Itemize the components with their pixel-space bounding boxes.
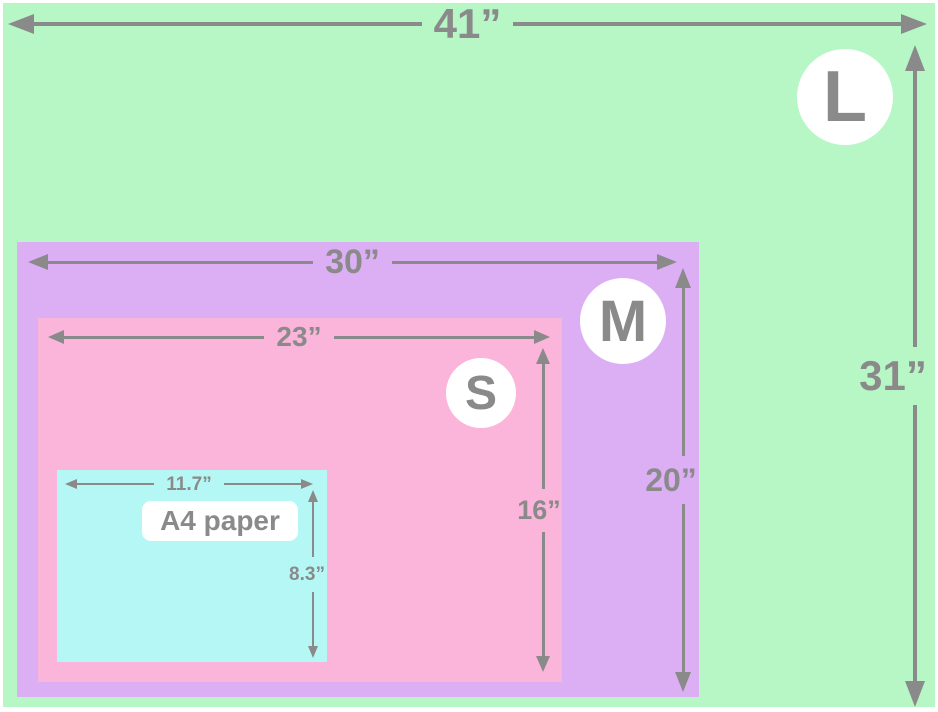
arrow-down-icon <box>905 681 925 707</box>
dimension-line <box>682 504 685 672</box>
dimension-line <box>682 288 685 456</box>
size-m-width-dimension: 30” <box>28 241 677 283</box>
dimension-line <box>913 71 917 347</box>
dimension-line <box>77 483 154 485</box>
size-s-badge: S <box>446 358 516 428</box>
size-l-width-dimension: 41” <box>8 2 927 46</box>
dimension-line <box>312 502 314 557</box>
size-m-badge-label: M <box>599 288 647 355</box>
dimension-line <box>312 592 314 647</box>
dimension-line <box>64 336 264 339</box>
size-s-width-dimension: 23” <box>48 320 550 354</box>
size-m-badge: M <box>580 278 666 364</box>
size-l-height-dimension: 31” <box>865 45 938 707</box>
arrow-left-icon <box>65 479 77 489</box>
dimension-line <box>48 261 313 264</box>
arrow-down-icon <box>308 646 318 658</box>
arrow-down-icon <box>536 656 550 672</box>
arrow-left-icon <box>48 330 64 344</box>
size-s-badge-label: S <box>465 366 497 421</box>
arrow-left-icon <box>28 254 48 270</box>
a4-paper-label-text: A4 paper <box>160 505 280 537</box>
arrow-up-icon <box>905 45 925 71</box>
dimension-line <box>542 532 545 657</box>
dimension-line <box>392 261 657 264</box>
a4-width-label: 11.7” <box>154 475 223 494</box>
arrow-right-icon <box>901 14 927 34</box>
arrow-down-icon <box>675 672 691 692</box>
dimension-line <box>334 336 534 339</box>
size-comparison-diagram: 41” 31” 30” 20” 23” 16” <box>0 0 938 712</box>
size-l-width-label: 41” <box>422 3 514 45</box>
arrow-right-icon <box>301 479 313 489</box>
arrow-up-icon <box>536 348 550 364</box>
size-m-width-label: 30” <box>313 245 392 279</box>
arrow-left-icon <box>8 14 34 34</box>
size-s-width-label: 23” <box>264 323 333 351</box>
arrow-right-icon <box>534 330 550 344</box>
dimension-line <box>34 22 422 26</box>
size-l-badge: L <box>797 49 893 145</box>
dimension-line <box>542 364 545 489</box>
arrow-up-icon <box>675 268 691 288</box>
dimension-line <box>513 22 901 26</box>
arrow-up-icon <box>308 490 318 502</box>
size-s-height-label: 16” <box>517 489 561 532</box>
size-l-badge-label: L <box>823 56 867 138</box>
dimension-line <box>913 405 917 681</box>
a4-height-label: 8.3” <box>289 557 325 592</box>
size-m-height-label: 20” <box>645 456 697 504</box>
a4-paper-label: A4 paper <box>142 501 298 541</box>
dimension-line <box>224 483 301 485</box>
size-l-height-label: 31” <box>859 347 927 405</box>
